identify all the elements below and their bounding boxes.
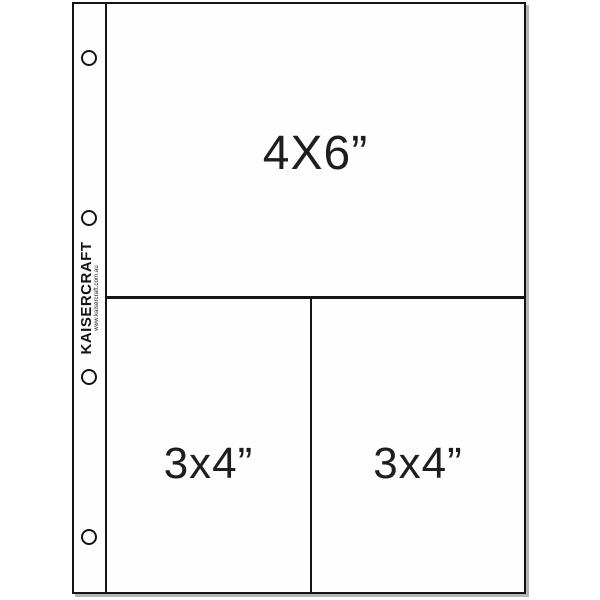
pocket-3x4-right-label: 3x4” [373,442,463,486]
pocket-page-sheet: KAISERCRAFT www.kaisercraft.com.au 4X6” … [72,2,526,594]
binder-hole [81,369,97,385]
product-image: KAISERCRAFT www.kaisercraft.com.au 4X6” … [0,0,600,600]
pocket-4x6-label: 4X6” [263,130,368,178]
binding-strip: KAISERCRAFT www.kaisercraft.com.au [74,4,107,592]
brand-logo-text: KAISERCRAFT [79,242,94,355]
pocket-3x4-left-label: 3x4” [164,442,254,486]
pocket-4x6: 4X6” [107,4,524,299]
pocket-3x4-left: 3x4” [107,299,312,592]
pockets-area: 4X6” 3x4” 3x4” [107,4,524,592]
bottom-pockets-row: 3x4” 3x4” [107,299,524,592]
binder-hole [81,210,97,226]
pocket-3x4-right: 3x4” [312,299,524,592]
binder-hole [81,529,97,545]
brand-block: KAISERCRAFT www.kaisercraft.com.au [79,242,101,355]
binder-hole [81,50,97,66]
